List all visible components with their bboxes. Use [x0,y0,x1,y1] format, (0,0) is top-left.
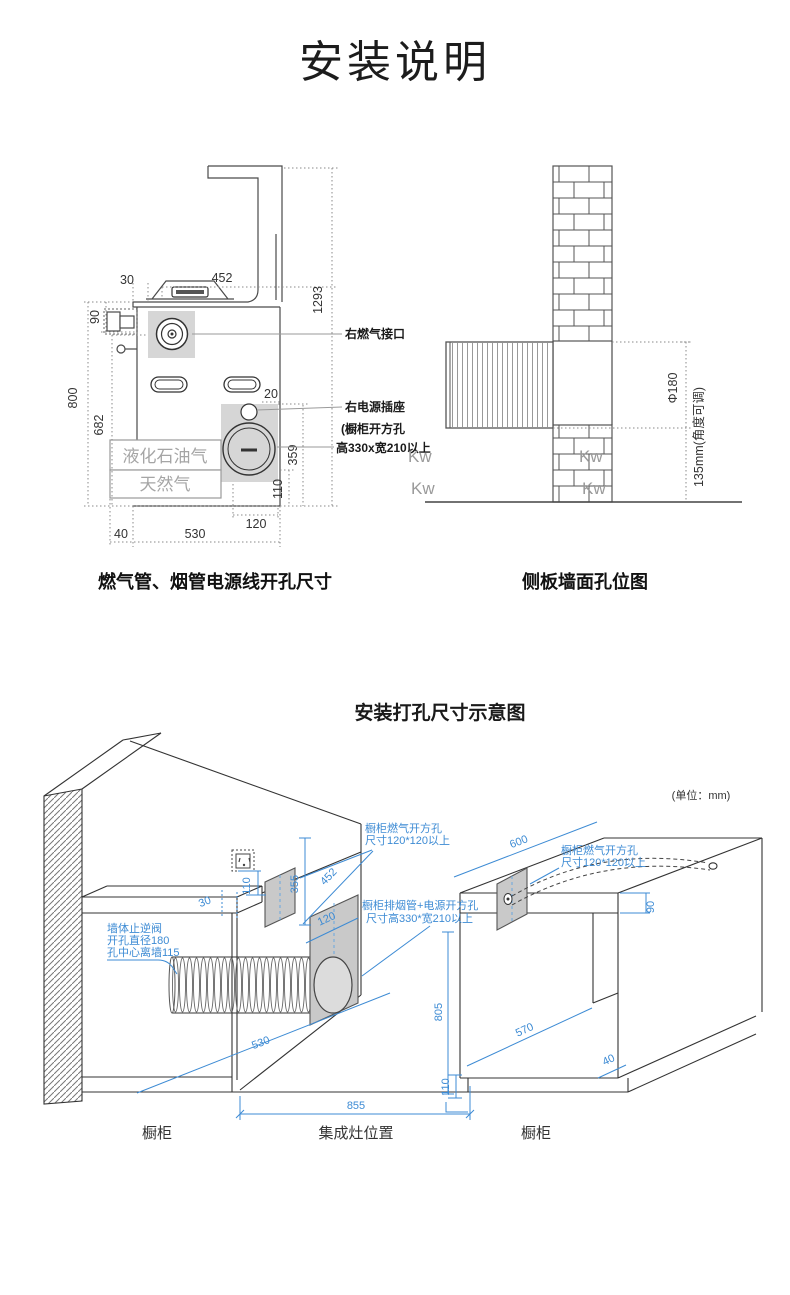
dim-570: 570 [514,1021,536,1040]
kw-watermark: Kw [582,479,606,498]
dim-682: 682 [92,415,106,436]
gas-type-ng: 天然气 [140,475,191,494]
ann-gas-hole-right-2: 尺寸120*120以上 [561,855,646,869]
front-view-diagram: 液化石油气 天然气 452 30 90 1293 800 682 20 359 … [60,150,420,610]
iso-captions: 橱柜 集成灶位置 橱柜 [142,1125,551,1142]
caption-cabinet-left: 橱柜 [142,1125,172,1142]
callout-cabinet-hole-1: (橱柜开方孔 [341,421,405,436]
gas-inlet-icon [148,311,195,358]
ann-valve-2: 开孔直径180 [107,933,169,947]
ann-valve-3: 孔中心离墙115 [107,945,180,959]
dim-805: 805 [433,1003,445,1021]
ann-flue-hole-2: 尺寸高330*宽210以上 [366,911,473,925]
ann-flue-hole-1: 橱柜排烟管+电源开方孔 [362,898,478,912]
counter-hole-icon [709,863,717,869]
dim-90: 90 [88,310,102,324]
dim-20: 20 [264,387,278,401]
power-socket-icon [232,850,254,871]
ann-gas-hole-right-1: 橱柜燃气开方孔 [561,843,638,857]
pipe-end-icon [314,957,352,1013]
iso-annotations: 橱柜燃气开方孔 尺寸120*120以上 橱柜燃气开方孔 尺寸120*120以上 … [107,821,646,976]
dim-30: 30 [120,273,134,287]
exhaust-pipe [446,342,553,428]
power-hole-icon [241,404,257,420]
dim-hole-diameter: Φ180 [666,373,680,404]
gas-type-boxes: 液化石油气 天然气 [110,440,221,498]
dim-800: 800 [66,388,80,409]
kw-watermark: Kw [579,447,603,466]
caption-cabinet-right: 橱柜 [521,1125,551,1142]
dim-600: 600 [508,833,529,851]
iso-drilling-diagram: (单位：mm) [30,730,760,1170]
dim-110: 110 [271,479,285,499]
front-dimension-labels: 452 30 90 1293 800 682 20 359 110 120 40… [66,271,325,541]
dim-452: 452 [212,271,233,285]
gas-valve-icon [104,309,137,353]
installation-instructions-page: 安装说明 [0,0,790,1295]
dim-359: 359 [286,445,300,466]
dim-530: 530 [185,527,206,541]
dim-530-iso: 530 [250,1034,271,1052]
side-caption: 侧板墙面孔位图 [522,571,648,592]
dim-40-iso: 40 [601,1052,617,1068]
dim-110-kick: 110 [440,1078,452,1096]
dim-120: 120 [246,517,267,531]
ann-gas-hole-left-1: 橱柜燃气开方孔 [365,821,442,835]
cutout-panel [221,404,278,482]
vent-slots [151,377,260,392]
dim-height-note: 135mm(角度可调) [691,387,706,487]
callout-gas-inlet: 右燃气接口 [344,326,405,341]
hatched-wall [44,733,161,1104]
kw-watermark: Kw [408,447,432,466]
unit-note: (单位：mm) [672,788,731,802]
iso-diagram-title: 安装打孔尺寸示意图 [354,698,525,725]
caption-stove-position: 集成灶位置 [318,1125,393,1142]
gas-type-lpg: 液化石油气 [123,447,208,466]
dim-355: 355 [289,875,301,893]
dim-855: 855 [347,1100,365,1112]
dim-110-socket: 110 [241,877,253,895]
ann-valve-1: 墙体止逆阀 [107,921,162,935]
kw-watermark: Kw [411,479,435,498]
exhaust-pipe-iso [169,957,333,1013]
ann-gas-hole-left-2: 尺寸120*120以上 [365,833,450,847]
dim-90-iso: 90 [645,901,657,913]
page-title: 安装说明 [0,26,790,90]
callout-power-socket: 右电源插座 [344,399,405,414]
dim-40: 40 [114,527,128,541]
side-wall-diagram: Φ180 135mm(角度可调) Kw Kw Kw Kw 侧板墙面孔位图 [400,150,750,610]
dim-1293: 1293 [311,286,325,314]
front-caption: 燃气管、烟管电源线开孔尺寸 [98,571,332,592]
